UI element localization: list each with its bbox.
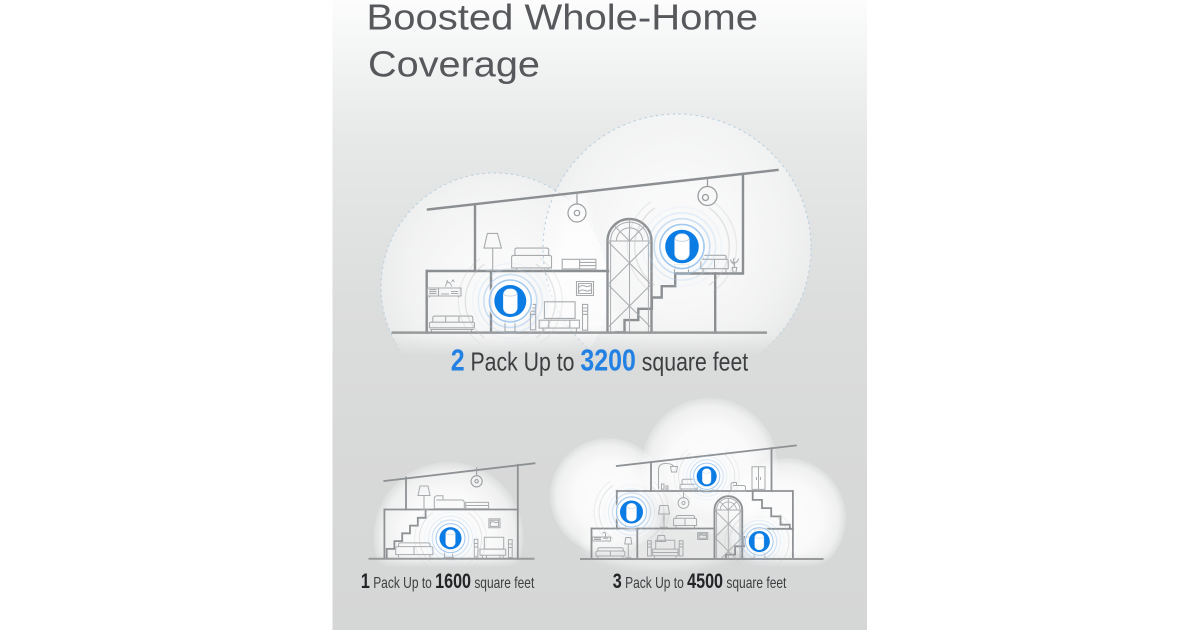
svg-text:Coverage: Coverage [368, 43, 540, 84]
svg-text:2 Pack Up to 3200 square feet: 2 Pack Up to 3200 square feet [451, 344, 749, 378]
svg-text:Boosted Whole-Home: Boosted Whole-Home [367, 0, 759, 37]
